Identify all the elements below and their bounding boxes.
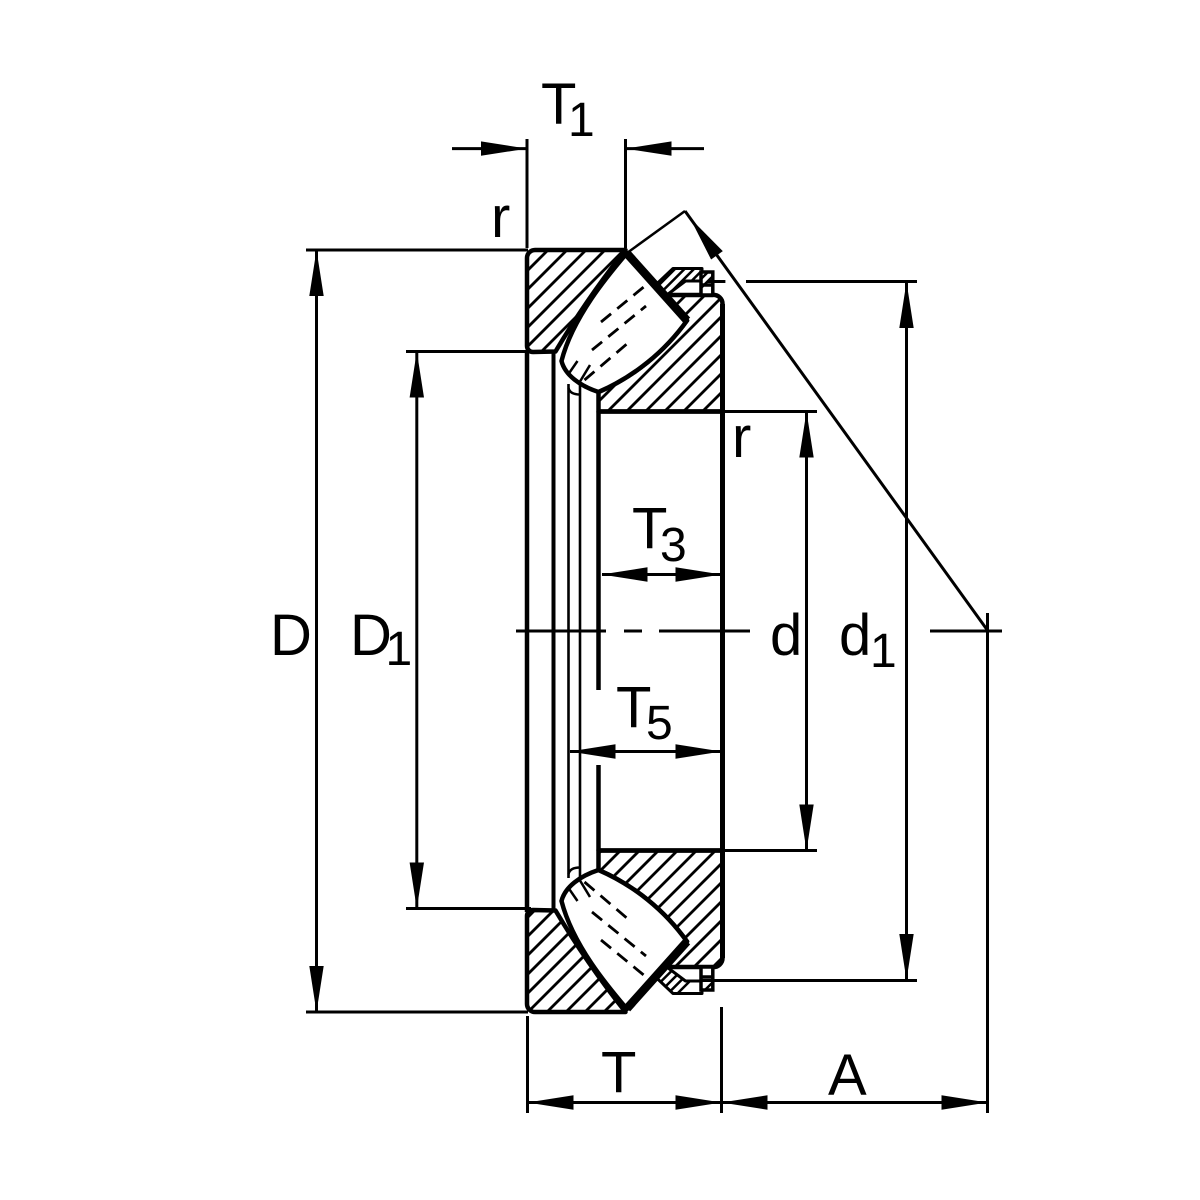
svg-text:3: 3 (660, 519, 687, 572)
svg-text:r: r (491, 185, 510, 250)
svg-text:1: 1 (870, 625, 897, 678)
svg-text:D: D (270, 603, 312, 668)
svg-text:d: d (770, 603, 802, 668)
svg-text:r: r (732, 405, 751, 470)
svg-text:T: T (601, 1041, 636, 1106)
svg-text:5: 5 (646, 697, 673, 750)
svg-text:A: A (828, 1043, 867, 1108)
svg-text:1: 1 (568, 94, 595, 147)
svg-text:1: 1 (386, 623, 413, 676)
svg-text:d: d (839, 603, 871, 668)
